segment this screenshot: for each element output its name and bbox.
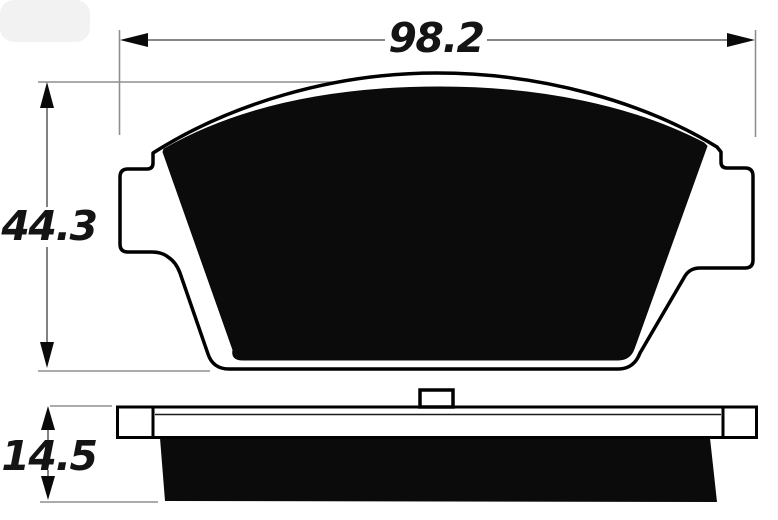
thickness-dimension-label: 14.5 xyxy=(1,432,96,480)
brake-pad-dimension-drawing: 98.2 44.3 14.5 xyxy=(0,0,778,520)
locating-tab xyxy=(420,390,453,407)
height-arrow-down-icon xyxy=(40,342,54,368)
friction-material-front xyxy=(163,87,707,360)
height-dimension-label: 44.3 xyxy=(0,202,96,250)
scan-artifact xyxy=(0,0,90,42)
width-dimension-label: 98.2 xyxy=(388,14,483,62)
drawing-canvas: 98.2 44.3 14.5 xyxy=(0,0,778,520)
friction-material-side xyxy=(160,438,717,502)
height-arrow-up-icon xyxy=(40,82,54,108)
width-arrow-left-icon xyxy=(120,33,148,47)
thickness-arrow-up-icon xyxy=(41,406,55,430)
width-arrow-right-icon xyxy=(727,33,755,47)
backing-plate-side xyxy=(118,407,757,438)
